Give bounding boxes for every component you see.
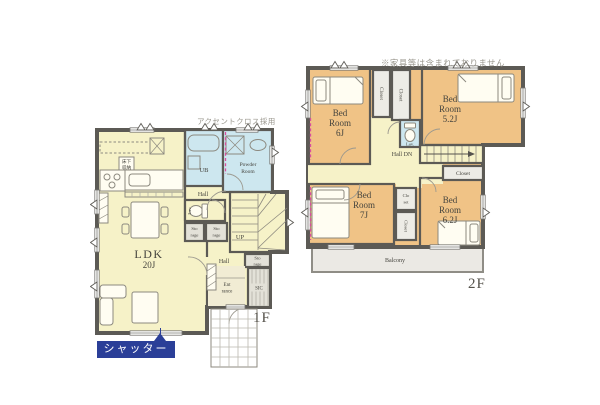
svg-text:Closet: Closet bbox=[404, 220, 409, 232]
closet-a: Closet bbox=[373, 70, 390, 117]
svg-text:Closet: Closet bbox=[398, 89, 403, 102]
label-bed7-3: 7J bbox=[360, 210, 369, 220]
room-ub bbox=[185, 130, 223, 186]
label-hall-lower: Hall bbox=[219, 259, 230, 265]
bed-icon-6j bbox=[313, 77, 363, 104]
toilet-icon bbox=[190, 204, 208, 218]
shoe-cabinet-icon bbox=[207, 264, 216, 290]
balcony: Balcony bbox=[312, 247, 483, 272]
svg-text:Sto: Sto bbox=[191, 226, 198, 231]
label-entrance-1: Ent bbox=[224, 283, 232, 288]
shutter-pointer-icon bbox=[154, 333, 166, 341]
svg-text:set: set bbox=[403, 200, 409, 205]
stove-icon bbox=[100, 170, 125, 191]
label-powder-2: Room bbox=[241, 169, 255, 175]
room-lav-2f: Lav. bbox=[400, 120, 420, 147]
label-bed52-2: Room bbox=[439, 104, 461, 114]
svg-text:収納: 収納 bbox=[122, 164, 132, 171]
floor-label-2f: 2F bbox=[468, 276, 486, 293]
label-bed7-1: Bed bbox=[357, 190, 372, 200]
closet-b: Closet bbox=[392, 70, 410, 120]
label-balcony: Balcony bbox=[385, 258, 405, 264]
svg-text:Sto: Sto bbox=[254, 256, 261, 261]
bed-icon-7j bbox=[312, 187, 349, 238]
label-entrance-2: rance bbox=[222, 290, 234, 295]
svg-text:rage: rage bbox=[254, 262, 262, 267]
label-bed62-1: Bed bbox=[443, 195, 458, 205]
storage-a: Sto rage bbox=[185, 223, 204, 241]
label-bed62-2: Room bbox=[439, 205, 461, 215]
label-bed62-3: 6.2J bbox=[443, 215, 458, 225]
storage-b: Sto rage bbox=[206, 223, 227, 241]
svg-text:rage: rage bbox=[213, 233, 221, 238]
svg-text:Clo: Clo bbox=[403, 193, 410, 198]
shutter-label: シャッター bbox=[97, 341, 175, 358]
label-bed6-3: 6J bbox=[336, 128, 345, 138]
label-hall-upper: Hall bbox=[198, 192, 209, 198]
tv-board-icon bbox=[99, 193, 108, 223]
label-up: UP bbox=[236, 234, 245, 241]
label-bed6-2: Room bbox=[329, 118, 351, 128]
svg-text:rage: rage bbox=[191, 233, 199, 238]
bed-icon-52j bbox=[458, 74, 514, 102]
label-powder-1: Powder bbox=[240, 162, 257, 168]
label-bed7-2: Room bbox=[353, 200, 375, 210]
svg-text:Closet: Closet bbox=[456, 171, 471, 177]
storage-c: Sto rage bbox=[245, 254, 270, 267]
toilet-icon-2f bbox=[405, 123, 416, 142]
label-bed52-3: 5.2J bbox=[443, 114, 458, 124]
label-lav-2f: Lav. bbox=[406, 142, 414, 147]
floor-storage-box: 床下 収納 bbox=[119, 157, 134, 171]
floor-label-1f: 1F bbox=[253, 310, 271, 327]
note-accent-wallpaper: アクセントクロス採用 bbox=[197, 116, 276, 127]
label-bed6-1: Bed bbox=[333, 108, 348, 118]
coffee-table-icon bbox=[132, 292, 158, 323]
label-hall-dn: Hall DN bbox=[392, 152, 413, 158]
label-ldk-size: 20J bbox=[143, 260, 156, 270]
label-lav: Lav bbox=[187, 207, 192, 215]
closet-mid: Clo set bbox=[396, 188, 416, 210]
floorplan-1f: Lav Sto rage Sto rage UP Sto rage bbox=[90, 112, 305, 376]
room-powder bbox=[223, 130, 272, 192]
svg-text:Sto: Sto bbox=[213, 226, 220, 231]
floorplan-2f: Balcony Closet Closet Closet Clo set Clo… bbox=[300, 60, 535, 310]
svg-text:床下: 床下 bbox=[122, 158, 132, 165]
label-ldk: LDK bbox=[134, 247, 163, 261]
room-sic: SIC bbox=[248, 268, 270, 307]
closet-right: Closet bbox=[443, 166, 483, 180]
svg-text:Closet: Closet bbox=[378, 87, 383, 100]
room-lav: Lav bbox=[185, 200, 225, 221]
label-bed52-1: Bed bbox=[443, 94, 458, 104]
label-sic: SIC bbox=[255, 287, 263, 292]
label-ub: UB bbox=[199, 167, 209, 174]
closet-mid2: Closet bbox=[396, 212, 416, 240]
porch-grid bbox=[211, 309, 257, 367]
note-furniture-disclaimer: ※家具等は含まれておりません bbox=[381, 57, 505, 69]
